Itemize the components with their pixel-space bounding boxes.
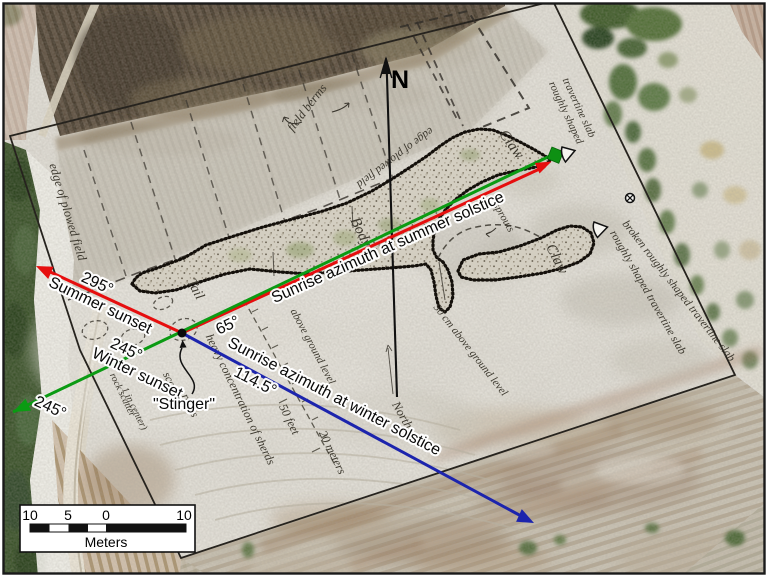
svg-text:10: 10 — [176, 507, 192, 523]
svg-text:Meters: Meters — [85, 534, 128, 550]
svg-text:0: 0 — [102, 507, 110, 523]
svg-text:10: 10 — [22, 507, 38, 523]
svg-text:5: 5 — [64, 507, 72, 523]
svg-text:"Stinger": "Stinger" — [153, 396, 215, 413]
svg-text:N: N — [391, 66, 409, 94]
